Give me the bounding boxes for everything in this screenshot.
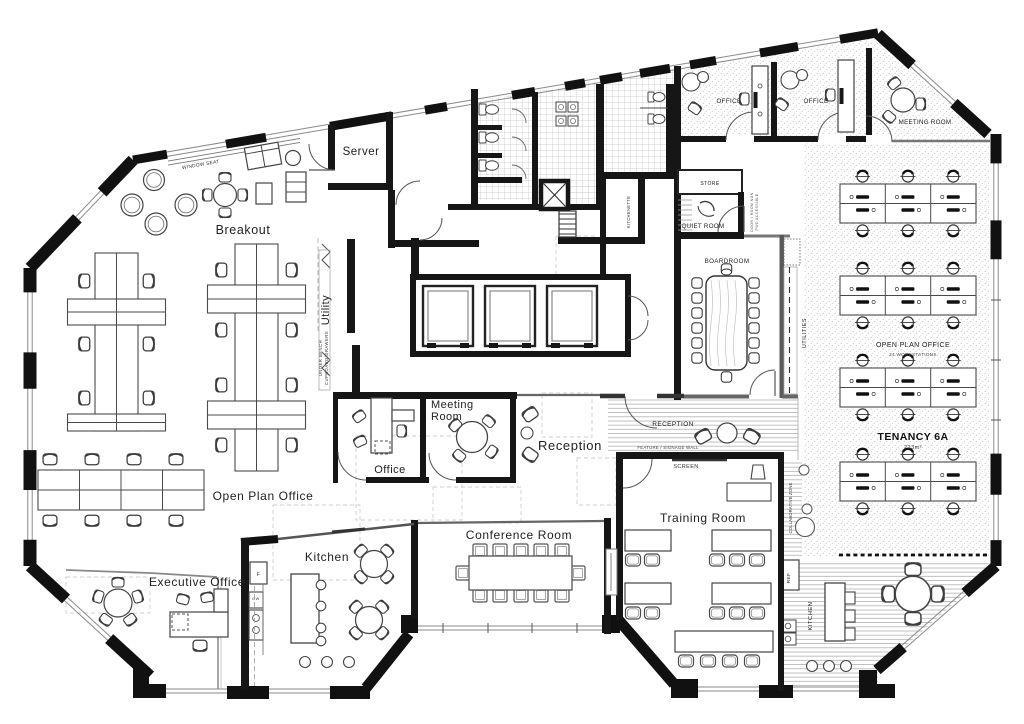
svg-text:UTILITIES: UTILITIES [802, 318, 808, 348]
svg-text:223m²: 223m² [904, 445, 922, 451]
svg-text:OFFICE: OFFICE [716, 98, 741, 105]
svg-text:TENANCY 6A: TENANCY 6A [878, 431, 949, 443]
svg-text:KITCHENETTE: KITCHENETTE [626, 196, 631, 228]
svg-text:DW: DW [252, 597, 259, 601]
svg-text:MEETING ROOM: MEETING ROOM [899, 119, 952, 126]
svg-text:QUIET ROOM: QUIET ROOM [682, 223, 725, 230]
svg-text:COLLABORATIVE ZONE: COLLABORATIVE ZONE [788, 483, 793, 534]
svg-text:Executive Office: Executive Office [149, 575, 245, 589]
svg-text:Server: Server [343, 146, 380, 158]
svg-text:KITCHEN: KITCHEN [808, 602, 814, 631]
svg-text:OPEN PLAN OFFICE: OPEN PLAN OFFICE [876, 342, 950, 349]
svg-text:Utility: Utility [320, 295, 332, 325]
svg-text:Office: Office [374, 464, 406, 476]
svg-text:Breakout: Breakout [216, 223, 271, 237]
svg-text:FEATURE / SIGNAGE WALL: FEATURE / SIGNAGE WALL [637, 445, 699, 450]
svg-text:Kitchen: Kitchen [305, 550, 349, 564]
svg-text:SCREEN: SCREEN [673, 464, 698, 470]
svg-text:24 WORKSTATIONS: 24 WORKSTATIONS [889, 352, 936, 357]
svg-text:PWD ACCESSIBLE: PWD ACCESSIBLE [755, 193, 759, 230]
svg-text:Conference Room: Conference Room [466, 528, 572, 542]
svg-text:Training Room: Training Room [660, 511, 746, 525]
svg-text:Open Plan Office: Open Plan Office [213, 489, 314, 503]
svg-text:Room: Room [431, 411, 462, 423]
svg-text:DOOR / ROOM NON: DOOR / ROOM NON [750, 192, 754, 232]
svg-text:CUPBOARD/DRAWERS: CUPBOARD/DRAWERS [324, 331, 329, 385]
svg-text:UNDER BENCH: UNDER BENCH [318, 340, 323, 376]
svg-text:Meeting: Meeting [431, 399, 474, 411]
svg-text:STORE: STORE [700, 181, 719, 187]
svg-text:RECEPTION: RECEPTION [652, 421, 694, 428]
svg-text:Reception: Reception [538, 438, 602, 453]
svg-text:OFFICE: OFFICE [803, 98, 828, 105]
svg-text:F: F [257, 572, 261, 578]
svg-text:REF: REF [786, 573, 792, 584]
